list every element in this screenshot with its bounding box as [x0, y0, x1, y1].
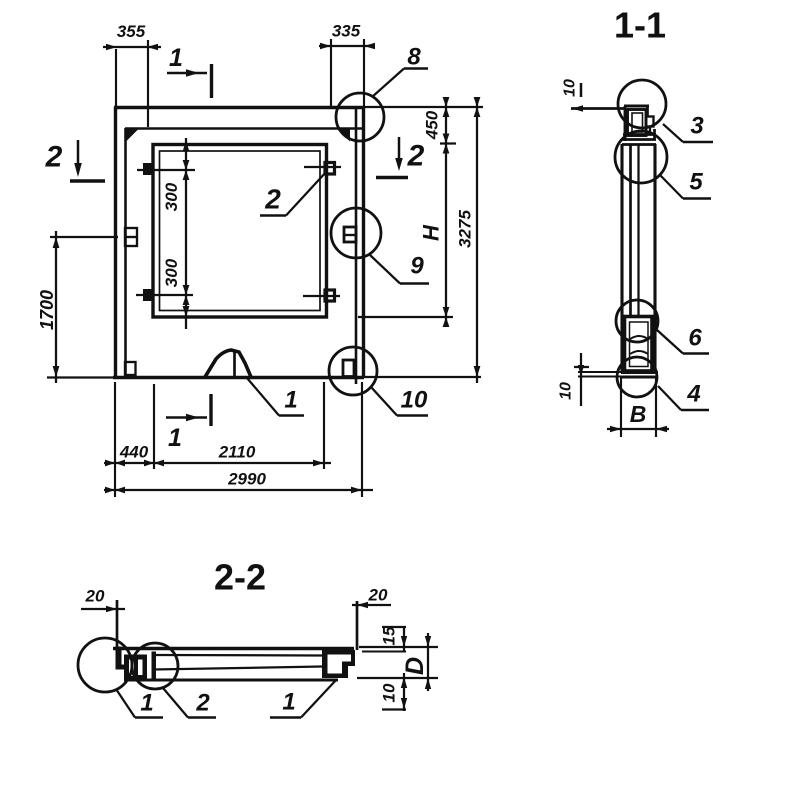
- svg-text:2: 2: [195, 690, 210, 717]
- svg-text:1: 1: [284, 387, 297, 414]
- svg-text:300: 300: [162, 182, 181, 211]
- svg-text:2110: 2110: [218, 443, 256, 462]
- svg-text:2: 2: [407, 140, 425, 173]
- svg-text:2: 2: [45, 141, 63, 174]
- svg-text:20: 20: [368, 586, 388, 605]
- svg-text:2: 2: [264, 184, 281, 215]
- svg-text:1700: 1700: [37, 290, 57, 330]
- svg-text:9: 9: [410, 253, 424, 280]
- svg-text:10: 10: [558, 382, 575, 400]
- svg-text:В: В: [630, 401, 647, 427]
- svg-text:1: 1: [282, 689, 295, 716]
- svg-text:3: 3: [690, 113, 704, 140]
- svg-text:450: 450: [423, 110, 442, 140]
- svg-text:10: 10: [562, 79, 579, 97]
- svg-text:8: 8: [407, 44, 421, 71]
- svg-text:15: 15: [380, 626, 399, 645]
- svg-text:D: D: [401, 657, 429, 675]
- svg-text:H: H: [419, 224, 444, 241]
- svg-text:1: 1: [168, 424, 182, 452]
- svg-text:5: 5: [689, 169, 703, 196]
- svg-text:20: 20: [85, 587, 105, 606]
- svg-text:1-1: 1-1: [614, 5, 666, 46]
- svg-text:355: 355: [117, 22, 146, 41]
- svg-text:1: 1: [169, 44, 183, 72]
- svg-text:300: 300: [162, 258, 181, 287]
- svg-text:1: 1: [140, 690, 153, 717]
- svg-text:2990: 2990: [227, 470, 266, 489]
- svg-text:2-2: 2-2: [214, 557, 266, 598]
- svg-text:335: 335: [332, 22, 361, 41]
- svg-text:6: 6: [688, 325, 702, 352]
- svg-text:10: 10: [401, 387, 428, 414]
- svg-text:10: 10: [380, 683, 399, 702]
- svg-text:4: 4: [686, 381, 700, 408]
- svg-text:440: 440: [119, 443, 149, 462]
- svg-text:3275: 3275: [456, 210, 475, 248]
